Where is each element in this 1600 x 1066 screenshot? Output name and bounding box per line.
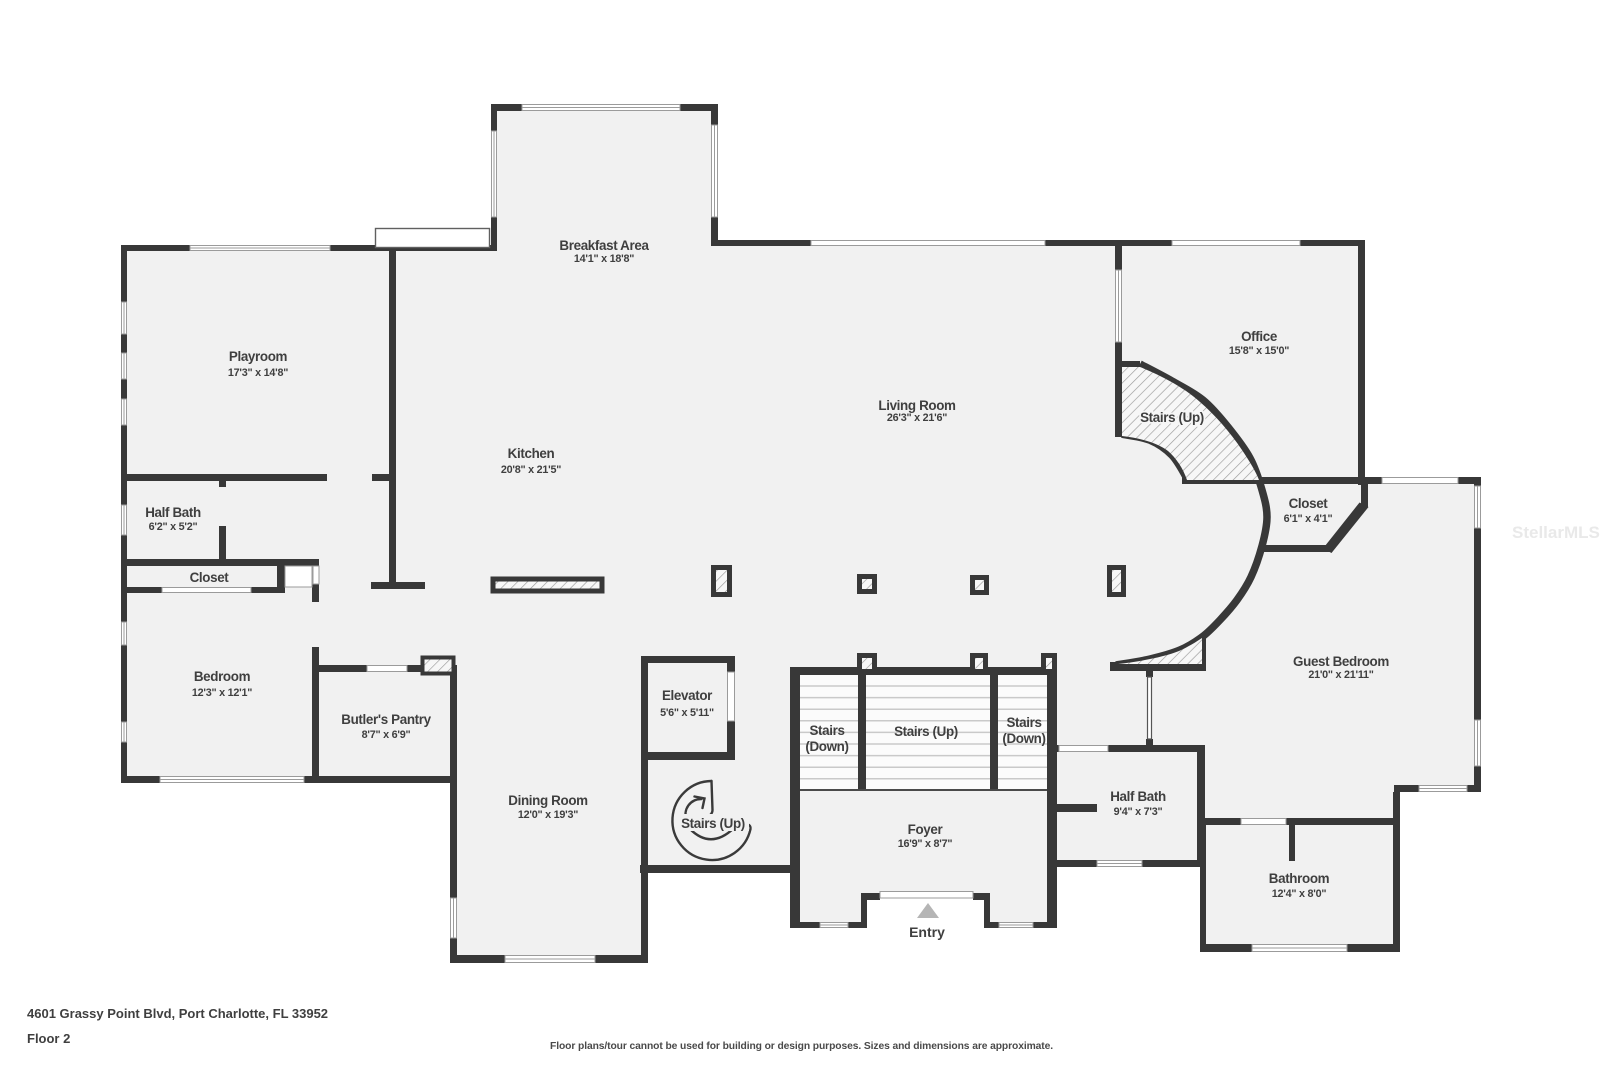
svg-text:Living Room: Living Room: [878, 398, 956, 413]
svg-text:Entry: Entry: [909, 924, 945, 940]
svg-text:(Down): (Down): [1002, 731, 1045, 746]
svg-text:12'4" x 8'0": 12'4" x 8'0": [1272, 888, 1327, 900]
svg-text:Stairs (Up): Stairs (Up): [894, 724, 958, 739]
svg-text:StellarMLS: StellarMLS: [1512, 523, 1600, 542]
svg-text:Breakfast Area: Breakfast Area: [559, 238, 649, 253]
svg-text:15'8" x 15'0": 15'8" x 15'0": [1229, 345, 1289, 357]
svg-text:Stairs (Up): Stairs (Up): [1140, 410, 1204, 425]
svg-text:12'0" x 19'3": 12'0" x 19'3": [518, 809, 578, 821]
svg-text:Stairs: Stairs: [1006, 715, 1041, 730]
svg-text:16'9" x 8'7": 16'9" x 8'7": [898, 838, 953, 850]
svg-text:Half Bath: Half Bath: [1110, 789, 1166, 804]
svg-text:12'3" x 12'1": 12'3" x 12'1": [192, 687, 252, 699]
svg-text:8'7" x 6'9": 8'7" x 6'9": [362, 729, 411, 741]
svg-text:(Down): (Down): [805, 739, 848, 754]
svg-text:14'1" x 18'8": 14'1" x 18'8": [574, 253, 634, 265]
svg-text:Kitchen: Kitchen: [508, 446, 555, 461]
svg-text:Floor 2: Floor 2: [27, 1031, 70, 1046]
svg-text:Elevator: Elevator: [662, 688, 713, 703]
svg-text:Half Bath: Half Bath: [145, 505, 201, 520]
svg-text:20'8" x 21'5": 20'8" x 21'5": [501, 464, 561, 476]
svg-text:Office: Office: [1241, 329, 1277, 344]
svg-text:5'6" x 5'11": 5'6" x 5'11": [660, 707, 714, 719]
svg-text:Stairs (Up): Stairs (Up): [681, 816, 745, 831]
svg-text:Stairs: Stairs: [809, 723, 844, 738]
svg-text:6'2" x 5'2": 6'2" x 5'2": [149, 521, 198, 533]
svg-text:Bathroom: Bathroom: [1269, 871, 1330, 886]
svg-text:Playroom: Playroom: [229, 349, 288, 364]
svg-text:26'3" x 21'6": 26'3" x 21'6": [887, 412, 947, 424]
svg-text:Dining Room: Dining Room: [508, 793, 588, 808]
svg-text:Floor plans/tour cannot be use: Floor plans/tour cannot be used for buil…: [550, 1041, 1053, 1052]
svg-text:17'3" x 14'8": 17'3" x 14'8": [228, 367, 288, 379]
svg-text:Butler's Pantry: Butler's Pantry: [341, 712, 431, 727]
svg-text:Bedroom: Bedroom: [194, 669, 251, 684]
svg-text:21'0" x 21'11": 21'0" x 21'11": [1308, 669, 1373, 681]
svg-text:Closet: Closet: [190, 570, 230, 585]
svg-text:6'1" x 4'1": 6'1" x 4'1": [1284, 513, 1333, 525]
svg-text:4601 Grassy Point Blvd, Port C: 4601 Grassy Point Blvd, Port Charlotte, …: [27, 1006, 328, 1021]
svg-text:Guest Bedroom: Guest Bedroom: [1293, 654, 1389, 669]
svg-text:Closet: Closet: [1289, 496, 1329, 511]
svg-text:9'4" x 7'3": 9'4" x 7'3": [1114, 806, 1163, 818]
svg-text:Foyer: Foyer: [908, 822, 944, 837]
